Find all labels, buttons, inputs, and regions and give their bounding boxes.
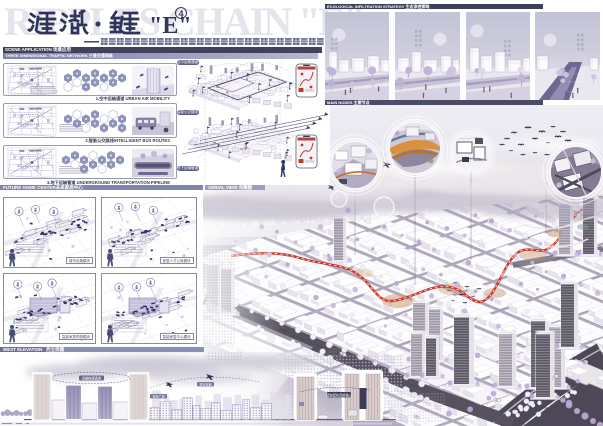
svg-text:智能模块连接核心: 智能模块连接核心 [326, 392, 352, 397]
svg-text:城市广场: 城市广场 [152, 394, 164, 399]
svg-text:城市互链: 城市互链 [199, 382, 211, 387]
svg-text:运输链接通道: 运输链接通道 [82, 375, 102, 380]
svg-text:4: 4 [178, 9, 184, 20]
